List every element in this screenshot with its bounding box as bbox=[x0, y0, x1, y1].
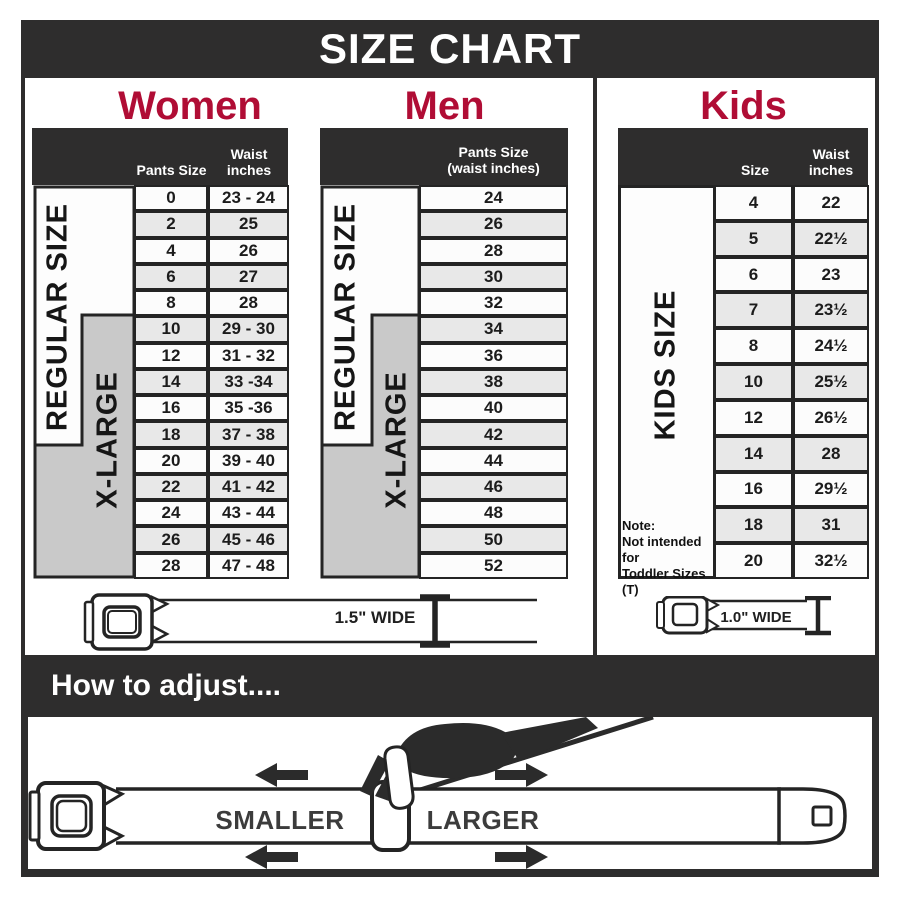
table-row: 48 bbox=[419, 500, 568, 526]
table-row: 1231 - 32 bbox=[134, 343, 289, 369]
table-cell: 24 bbox=[134, 500, 208, 526]
kids-table: 422522½623723½824½1025½1226½14281629½183… bbox=[714, 185, 869, 579]
table-cell: 6 bbox=[134, 264, 208, 290]
table-cell: 25 bbox=[208, 211, 289, 237]
adjust-band: How to adjust.... bbox=[21, 655, 879, 717]
table-cell: 22 bbox=[134, 474, 208, 500]
kids-col1-header: Size bbox=[716, 162, 794, 178]
table-cell: 32½ bbox=[793, 543, 869, 579]
table-cell: 26½ bbox=[793, 400, 869, 436]
kids-note: Note: Not intended for Toddler Sizes (T) bbox=[622, 518, 720, 598]
table-cell: 23 bbox=[793, 257, 869, 293]
larger-label: LARGER bbox=[423, 805, 543, 836]
table-cell: 41 - 42 bbox=[208, 474, 289, 500]
table-cell: 12 bbox=[134, 343, 208, 369]
section-divider bbox=[593, 78, 597, 655]
table-cell: 8 bbox=[714, 328, 793, 364]
men-col-header-line1: Pants Size bbox=[419, 144, 568, 160]
table-cell: 42 bbox=[419, 421, 568, 447]
table-cell: 46 bbox=[419, 474, 568, 500]
table-row: 1831 bbox=[714, 507, 869, 543]
table-cell: 8 bbox=[134, 290, 208, 316]
table-cell: 36 bbox=[419, 343, 568, 369]
table-cell: 7 bbox=[714, 292, 793, 328]
women-regular-size-label: REGULAR SIZE bbox=[42, 203, 75, 431]
table-row: 40 bbox=[419, 395, 568, 421]
table-row: 38 bbox=[419, 369, 568, 395]
table-cell: 40 bbox=[419, 395, 568, 421]
table-row: 1428 bbox=[714, 436, 869, 472]
men-col-header: Pants Size (waist inches) bbox=[419, 144, 568, 176]
table-row: 32 bbox=[419, 290, 568, 316]
table-row: 828 bbox=[134, 290, 289, 316]
table-cell: 18 bbox=[714, 507, 793, 543]
women-xlarge-label: X-LARGE bbox=[92, 371, 125, 509]
table-row: 2241 - 42 bbox=[134, 474, 289, 500]
table-cell: 10 bbox=[134, 316, 208, 342]
table-cell: 26 bbox=[419, 211, 568, 237]
table-cell: 16 bbox=[714, 472, 793, 508]
men-heading: Men bbox=[382, 84, 507, 128]
table-row: 30 bbox=[419, 264, 568, 290]
table-cell: 27 bbox=[208, 264, 289, 290]
table-row: 34 bbox=[419, 316, 568, 342]
table-cell: 4 bbox=[714, 185, 793, 221]
table-cell: 47 - 48 bbox=[208, 553, 289, 579]
kids-note-line2: Not intended for bbox=[622, 534, 720, 566]
table-row: 422 bbox=[714, 185, 869, 221]
table-cell: 16 bbox=[134, 395, 208, 421]
table-row: 42 bbox=[419, 421, 568, 447]
page-title: SIZE CHART bbox=[21, 20, 879, 78]
table-cell: 4 bbox=[134, 238, 208, 264]
table-cell: 26 bbox=[208, 238, 289, 264]
table-row: 1635 -36 bbox=[134, 395, 289, 421]
table-cell: 29 - 30 bbox=[208, 316, 289, 342]
table-cell: 23 - 24 bbox=[208, 185, 289, 211]
table-cell: 5 bbox=[714, 221, 793, 257]
table-cell: 39 - 40 bbox=[208, 448, 289, 474]
table-cell: 34 bbox=[419, 316, 568, 342]
table-cell: 25½ bbox=[793, 364, 869, 400]
table-cell: 2 bbox=[134, 211, 208, 237]
table-row: 44 bbox=[419, 448, 568, 474]
men-table: 242628303234363840424446485052 bbox=[419, 185, 568, 579]
table-row: 623 bbox=[714, 257, 869, 293]
table-row: 2847 - 48 bbox=[134, 553, 289, 579]
table-row: 225 bbox=[134, 211, 289, 237]
table-row: 1837 - 38 bbox=[134, 421, 289, 447]
table-row: 46 bbox=[419, 474, 568, 500]
table-cell: 20 bbox=[134, 448, 208, 474]
kids-note-line3: Toddler Sizes (T) bbox=[622, 566, 720, 598]
table-row: 24 bbox=[419, 185, 568, 211]
table-cell: 14 bbox=[134, 369, 208, 395]
table-cell: 28 bbox=[419, 238, 568, 264]
table-row: 627 bbox=[134, 264, 289, 290]
men-regular-size-label: REGULAR SIZE bbox=[330, 203, 363, 431]
smaller-label: SMALLER bbox=[210, 805, 350, 836]
table-row: 2645 - 46 bbox=[134, 526, 289, 552]
women-col1-header: Pants Size bbox=[135, 162, 208, 178]
table-cell: 6 bbox=[714, 257, 793, 293]
kids-size-label: KIDS SIZE bbox=[650, 290, 683, 441]
women-col2-header: Waist inches bbox=[210, 146, 288, 178]
table-row: 1226½ bbox=[714, 400, 869, 436]
size-chart-page: SIZE CHART Women Men Kids Pants Size Wai… bbox=[0, 0, 900, 900]
table-cell: 14 bbox=[714, 436, 793, 472]
kids-table-header: Size Waist inches bbox=[618, 128, 868, 185]
table-cell: 24½ bbox=[793, 328, 869, 364]
men-table-header: Pants Size (waist inches) bbox=[320, 128, 568, 185]
table-row: 1433 -34 bbox=[134, 369, 289, 395]
table-row: 50 bbox=[419, 526, 568, 552]
kids-col2-header: Waist inches bbox=[794, 146, 868, 178]
table-row: 426 bbox=[134, 238, 289, 264]
table-cell: 0 bbox=[134, 185, 208, 211]
adjust-illustration bbox=[21, 717, 879, 870]
table-cell: 23½ bbox=[793, 292, 869, 328]
table-row: 2032½ bbox=[714, 543, 869, 579]
table-cell: 28 bbox=[134, 553, 208, 579]
table-cell: 24 bbox=[419, 185, 568, 211]
table-row: 824½ bbox=[714, 328, 869, 364]
table-row: 52 bbox=[419, 553, 568, 579]
arrow-left-icon bbox=[255, 763, 308, 787]
table-cell: 22 bbox=[793, 185, 869, 221]
arrow-left-icon bbox=[245, 845, 298, 869]
table-row: 723½ bbox=[714, 292, 869, 328]
table-cell: 18 bbox=[134, 421, 208, 447]
table-row: 36 bbox=[419, 343, 568, 369]
table-cell: 44 bbox=[419, 448, 568, 474]
table-row: 26 bbox=[419, 211, 568, 237]
table-cell: 10 bbox=[714, 364, 793, 400]
table-row: 1029 - 30 bbox=[134, 316, 289, 342]
table-row: 1025½ bbox=[714, 364, 869, 400]
table-cell: 43 - 44 bbox=[208, 500, 289, 526]
kids-heading: Kids bbox=[681, 84, 806, 128]
table-cell: 31 - 32 bbox=[208, 343, 289, 369]
table-cell: 32 bbox=[419, 290, 568, 316]
women-table: 023 - 242254266278281029 - 301231 - 3214… bbox=[134, 185, 289, 579]
men-col-header-line2: (waist inches) bbox=[419, 160, 568, 176]
table-cell: 29½ bbox=[793, 472, 869, 508]
table-cell: 37 - 38 bbox=[208, 421, 289, 447]
arrow-right-icon bbox=[495, 845, 548, 869]
table-row: 023 - 24 bbox=[134, 185, 289, 211]
kids-note-line1: Note: bbox=[622, 518, 720, 534]
table-cell: 22½ bbox=[793, 221, 869, 257]
adult-belt-width-label: 1.5" WIDE bbox=[305, 608, 445, 628]
table-cell: 48 bbox=[419, 500, 568, 526]
table-row: 1629½ bbox=[714, 472, 869, 508]
table-cell: 30 bbox=[419, 264, 568, 290]
table-cell: 38 bbox=[419, 369, 568, 395]
table-row: 2039 - 40 bbox=[134, 448, 289, 474]
kids-belt-width-label: 1.0" WIDE bbox=[710, 609, 802, 626]
table-cell: 26 bbox=[134, 526, 208, 552]
width-measure-icon bbox=[805, 598, 831, 633]
table-cell: 28 bbox=[793, 436, 869, 472]
table-cell: 33 -34 bbox=[208, 369, 289, 395]
adjust-heading: How to adjust.... bbox=[21, 655, 879, 717]
table-row: 2443 - 44 bbox=[134, 500, 289, 526]
table-cell: 12 bbox=[714, 400, 793, 436]
table-cell: 35 -36 bbox=[208, 395, 289, 421]
table-cell: 52 bbox=[419, 553, 568, 579]
table-row: 28 bbox=[419, 238, 568, 264]
men-xlarge-label: X-LARGE bbox=[381, 371, 414, 509]
table-cell: 20 bbox=[714, 543, 793, 579]
women-table-header: Pants Size Waist inches bbox=[32, 128, 288, 185]
table-cell: 50 bbox=[419, 526, 568, 552]
finger-icon bbox=[385, 747, 413, 808]
table-cell: 31 bbox=[793, 507, 869, 543]
table-cell: 28 bbox=[208, 290, 289, 316]
table-cell: 45 - 46 bbox=[208, 526, 289, 552]
table-row: 522½ bbox=[714, 221, 869, 257]
women-heading: Women bbox=[90, 84, 290, 128]
